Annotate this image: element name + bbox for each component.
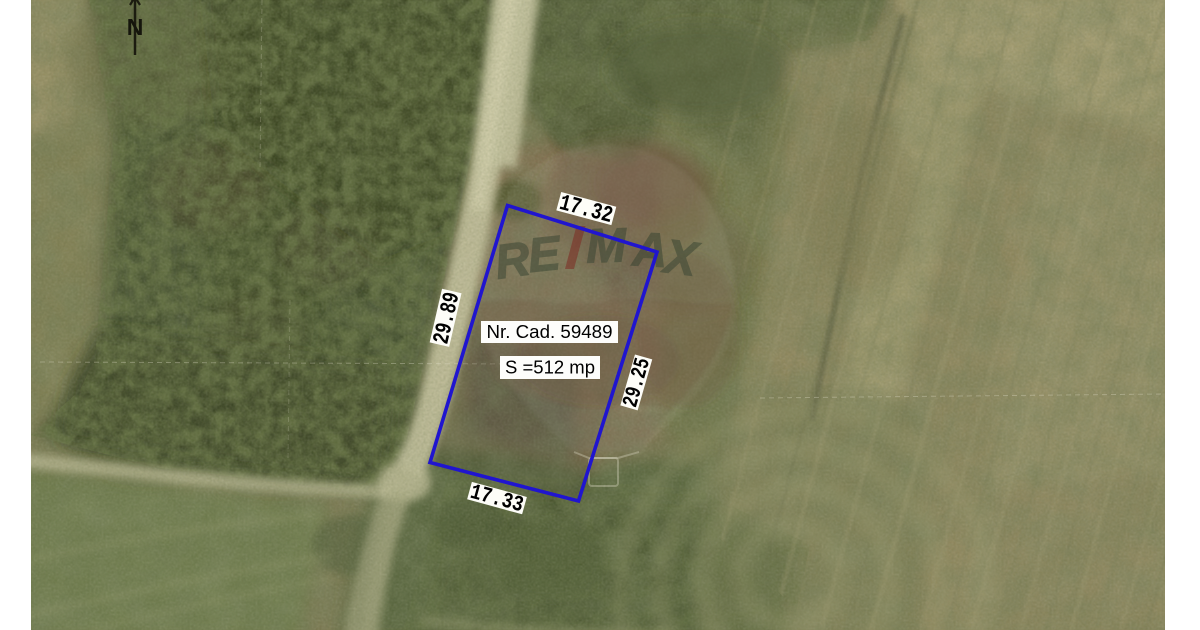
svg-text:N: N xyxy=(127,14,144,40)
svg-text:S =512 mp: S =512 mp xyxy=(505,358,595,378)
svg-text:Nr. Cad. 59489: Nr. Cad. 59489 xyxy=(487,322,613,342)
